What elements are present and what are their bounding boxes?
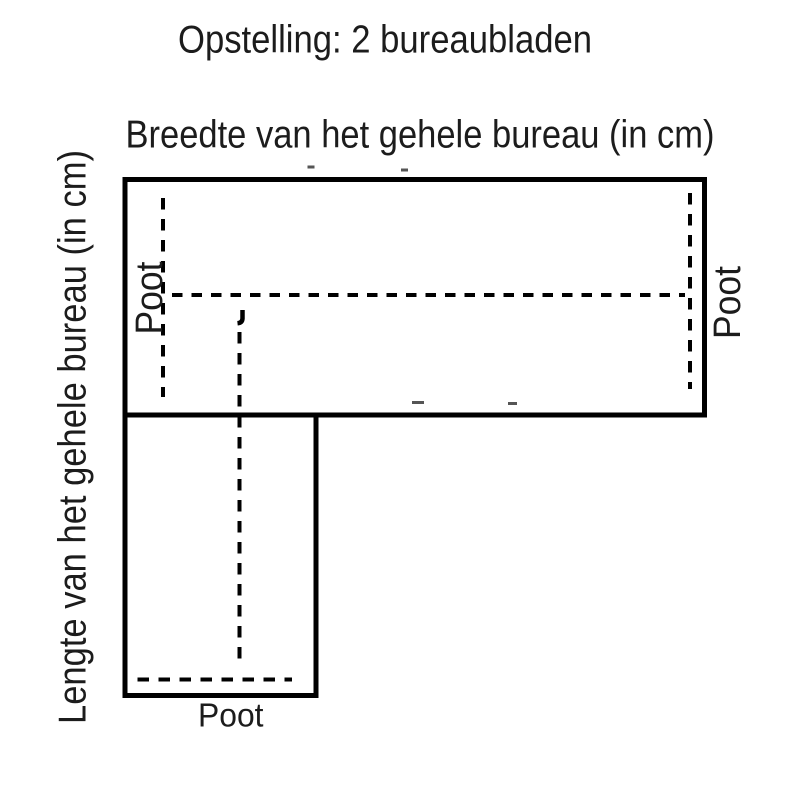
svg-text:Poot: Poot [707,266,749,339]
svg-text:Poot: Poot [129,261,171,334]
svg-text:Poot: Poot [198,698,264,735]
svg-text:Lengte van het gehele bureau (: Lengte van het gehele bureau (in cm) [52,150,95,724]
svg-text:Breedte van het gehele bureau: Breedte van het gehele bureau (in cm) [126,114,715,157]
svg-text:Opstelling: 2 bureaubladen: Opstelling: 2 bureaubladen [178,19,592,62]
